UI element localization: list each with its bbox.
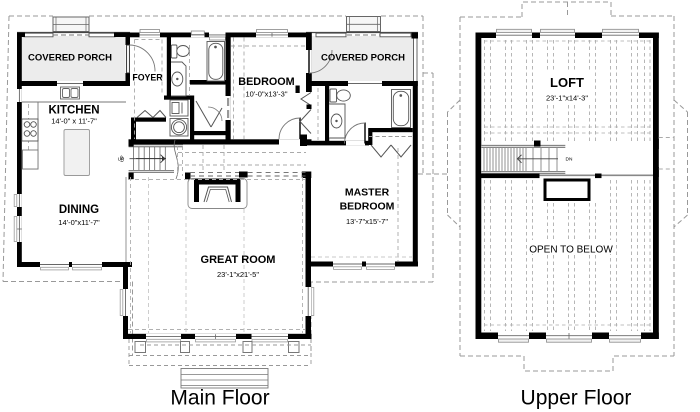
svg-text:23'-1"x21'-5": 23'-1"x21'-5": [217, 270, 259, 279]
svg-text:UP: UP: [118, 156, 125, 162]
svg-text:10'-0"x13'-3": 10'-0"x13'-3": [246, 90, 288, 99]
svg-text:14'-0"x11'-7": 14'-0"x11'-7": [58, 218, 100, 227]
svg-text:13'-7"x15'-7": 13'-7"x15'-7": [346, 217, 388, 226]
svg-text:FOYER: FOYER: [132, 73, 163, 83]
svg-text:MASTER: MASTER: [345, 187, 390, 199]
svg-text:COVERED PORCH: COVERED PORCH: [321, 53, 405, 64]
svg-text:BEDROOM: BEDROOM: [340, 201, 395, 213]
svg-text:COVERED PORCH: COVERED PORCH: [28, 53, 112, 64]
svg-text:DINING: DINING: [59, 204, 99, 216]
svg-text:BEDROOM: BEDROOM: [238, 76, 294, 88]
svg-text:23'-1"x14'-3": 23'-1"x14'-3": [546, 94, 588, 103]
svg-text:KITCHEN: KITCHEN: [48, 105, 99, 117]
svg-text:Upper Floor: Upper Floor: [521, 387, 632, 410]
svg-text:OPEN TO BELOW: OPEN TO BELOW: [529, 245, 613, 256]
svg-text:GREAT ROOM: GREAT ROOM: [201, 254, 276, 266]
svg-text:Main Floor: Main Floor: [170, 387, 269, 410]
svg-text:DN: DN: [566, 157, 573, 163]
svg-text:LOFT: LOFT: [550, 75, 584, 90]
svg-text:14'-0" x 11'-7": 14'-0" x 11'-7": [51, 117, 97, 126]
